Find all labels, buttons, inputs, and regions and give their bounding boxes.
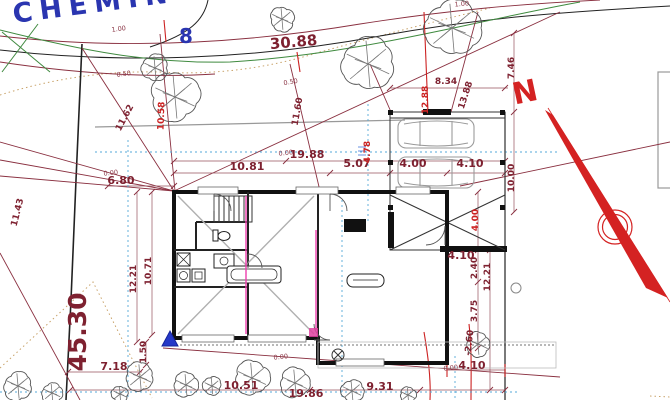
dimension-label: -2.60 (464, 329, 477, 356)
dimension-label: 0.00 (273, 352, 288, 361)
survey-point-circle (511, 283, 521, 293)
tree (202, 376, 221, 395)
tree (401, 387, 417, 400)
dimension-label: 4.00 (399, 157, 426, 170)
dimension-label: 13.88 (457, 80, 475, 110)
tree (341, 36, 394, 88)
site-plan: N CHEMIN DU PE 8 30.88 45.30 1.001.000.5… (0, 0, 670, 400)
dimension-label: 4.10 (458, 359, 485, 372)
boundary-length-dimension: 45.30 (63, 292, 92, 371)
road-survey-tick (164, 20, 166, 42)
lot-number: 8 (179, 24, 193, 48)
dimension-label: 8.34 (435, 77, 457, 87)
north-arrow: N (509, 73, 670, 302)
dimension-label: 0.00 (278, 148, 293, 157)
dimension-label: 1.00 (111, 24, 126, 34)
tree (111, 386, 128, 400)
neighbor-building-outline (658, 72, 670, 188)
window (198, 187, 238, 194)
site-plan-canvas: N CHEMIN DU PE 8 30.88 45.30 1.001.000.5… (0, 0, 670, 400)
tree-branch (441, 19, 463, 38)
tree (126, 362, 153, 392)
dimension-label: 12.88 (421, 86, 431, 114)
dimension-label: 1.50 (139, 341, 149, 363)
dimension-label: 3.75 (470, 300, 480, 322)
dimension-label: 7.18 (100, 360, 127, 373)
dimension-label: 0.00 (443, 363, 458, 372)
window (248, 335, 306, 342)
tree (4, 372, 32, 400)
dimension-label: 10.81 (230, 160, 265, 173)
dimension-label: 12.21 (483, 263, 493, 291)
dimension-label: 19.86 (289, 387, 324, 400)
fireplace (344, 219, 366, 232)
road-frontage-dimension: 30.88 (269, 31, 318, 53)
tree-branch (357, 55, 379, 73)
dimension-label: 10.58 (157, 102, 168, 131)
dimension-label: 0.00 (103, 168, 118, 177)
dimension-label: 4.00 (471, 209, 481, 231)
window (396, 187, 430, 194)
window (296, 187, 338, 194)
dimension-label: 9.31 (366, 380, 393, 393)
window (182, 335, 234, 342)
dimension-label: 11.43 (10, 197, 27, 227)
tree-branch (407, 388, 408, 400)
dimension-label: 0.50 (283, 77, 299, 87)
tree-crown (341, 36, 394, 88)
dimension-label: 12.21 (129, 265, 139, 293)
dimension-label: 4.10 (456, 157, 483, 170)
dimension-label: 0.50 (116, 69, 131, 79)
dimension-label: 2.40 (470, 257, 480, 279)
tree-crown (423, 0, 482, 54)
dimension-label: 19.88 (290, 148, 325, 161)
dimension-label: 10.00 (507, 164, 517, 192)
dimension-label: 7.46 (507, 57, 517, 79)
window (336, 359, 384, 366)
bathtub (227, 266, 281, 283)
dimension-label: 10.51 (224, 379, 259, 392)
dimension-label: 11.62 (114, 103, 136, 133)
dimension-label: 1.00 (454, 0, 469, 9)
tree (174, 372, 199, 398)
tree-branch (165, 89, 185, 106)
table (347, 274, 384, 287)
magenta-marker (309, 328, 318, 337)
tree (423, 0, 482, 54)
dimension-label: 4.78 (363, 141, 373, 163)
dimension-label: 10.71 (144, 257, 154, 285)
tree (42, 383, 63, 400)
tree (271, 7, 295, 32)
